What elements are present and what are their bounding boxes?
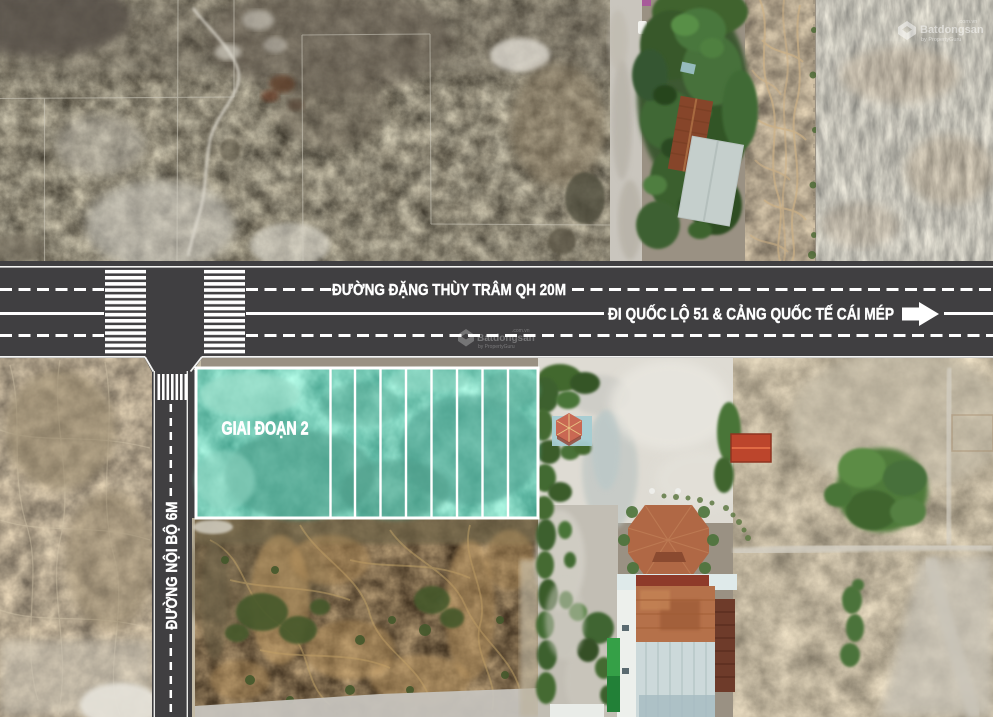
svg-text:ĐƯỜNG NỘI BỘ 6M: ĐƯỜNG NỘI BỘ 6M bbox=[163, 502, 181, 630]
svg-text:ĐI QUỐC LỘ 51 & CẢNG QUỐC TẾ C: ĐI QUỐC LỘ 51 & CẢNG QUỐC TẾ CÁI MÉP bbox=[608, 304, 894, 324]
svg-text:by PropertyGuru: by PropertyGuru bbox=[478, 344, 515, 350]
svg-text:GIAI ĐOẠN 2: GIAI ĐOẠN 2 bbox=[222, 418, 309, 439]
svg-text:.com.vn: .com.vn bbox=[512, 328, 530, 334]
svg-text:.com.vn: .com.vn bbox=[958, 19, 977, 25]
svg-text:ĐƯỜNG ĐẶNG THÙY TRÂM QH 20M: ĐƯỜNG ĐẶNG THÙY TRÂM QH 20M bbox=[332, 280, 566, 299]
svg-text:Batdongsan: Batdongsan bbox=[920, 24, 984, 36]
svg-text:by PropertyGuru: by PropertyGuru bbox=[921, 37, 961, 43]
svg-text:Batdongsan: Batdongsan bbox=[477, 333, 535, 344]
